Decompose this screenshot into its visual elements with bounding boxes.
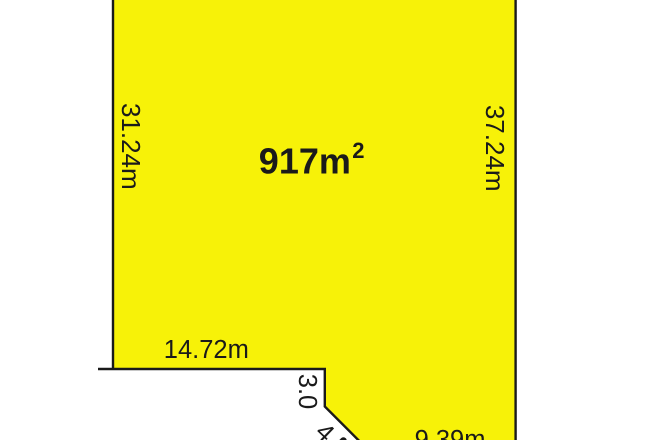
svg-text:917m: 917m <box>259 140 351 181</box>
svg-text:31.24m: 31.24m <box>116 103 146 190</box>
svg-text:3.0: 3.0 <box>293 374 321 409</box>
svg-text:2: 2 <box>352 138 364 163</box>
svg-text:14.72m: 14.72m <box>164 336 249 364</box>
svg-text:37.24m: 37.24m <box>480 105 510 192</box>
svg-text:9.39m: 9.39m <box>415 426 486 440</box>
